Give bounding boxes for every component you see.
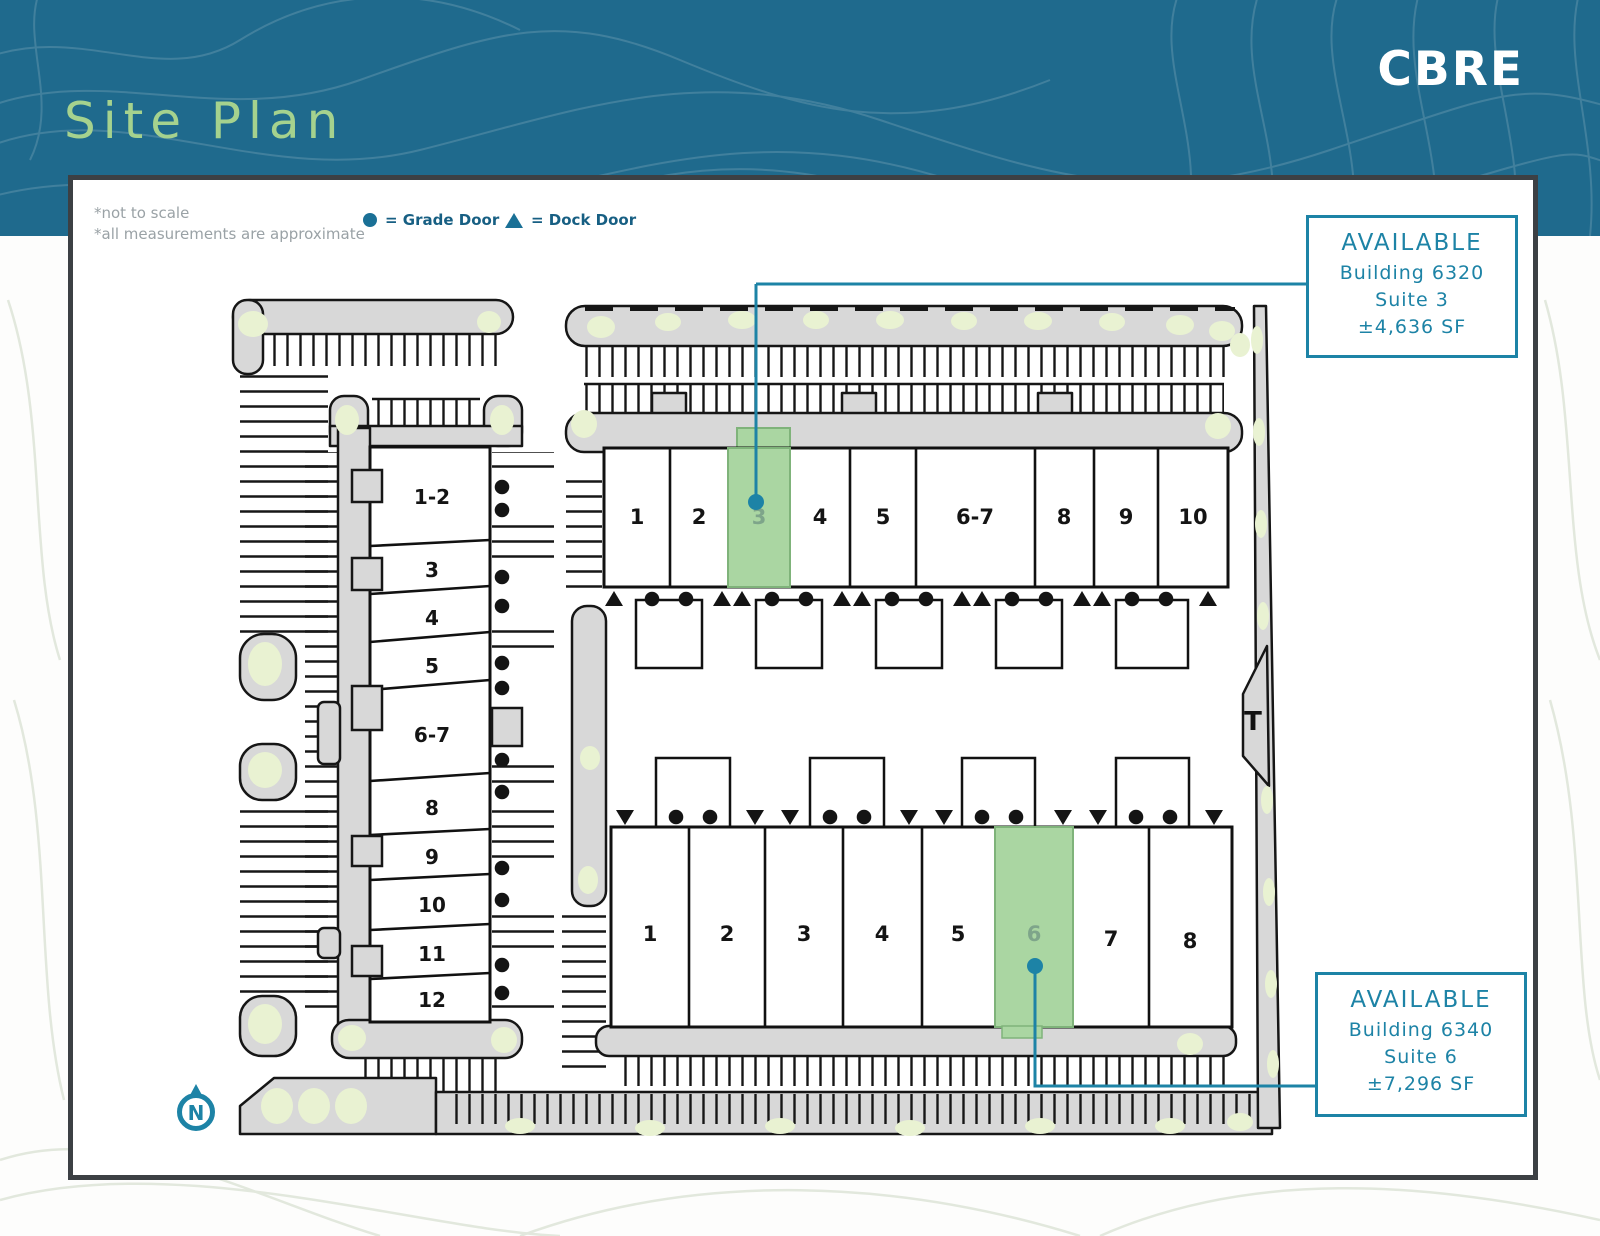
legend-dock-door: = Dock Door [505,211,636,229]
callout-size: ±7,296 SF [1318,1073,1524,1095]
grade-door-icon [363,213,377,227]
dock-door-label: = Dock Door [531,211,636,229]
callout-size: ±4,636 SF [1309,316,1515,338]
cbre-logo: CBRE [1377,42,1524,97]
availability-callout-6320: AVAILABLE Building 6320 Suite 3 ±4,636 S… [1306,215,1518,358]
page-title: Site Plan [64,92,345,150]
callout-building: Building 6320 [1309,262,1515,284]
callout-status: AVAILABLE [1309,230,1515,256]
note-not-to-scale: *not to scale [94,203,365,224]
plan-notes: *not to scale *all measurements are appr… [94,203,365,245]
callout-suite: Suite 3 [1309,289,1515,311]
callout-building: Building 6340 [1318,1019,1524,1041]
dock-door-icon [505,213,523,228]
availability-callout-6340: AVAILABLE Building 6340 Suite 6 ±7,296 S… [1315,972,1527,1117]
grade-door-label: = Grade Door [385,211,499,229]
note-measurements: *all measurements are approximate [94,224,365,245]
legend-grade-door: = Grade Door [363,211,499,229]
callout-status: AVAILABLE [1318,987,1524,1013]
site-plan-page: Site Plan CBRE *not to scale *all measur… [0,0,1600,1236]
callout-suite: Suite 6 [1318,1046,1524,1068]
